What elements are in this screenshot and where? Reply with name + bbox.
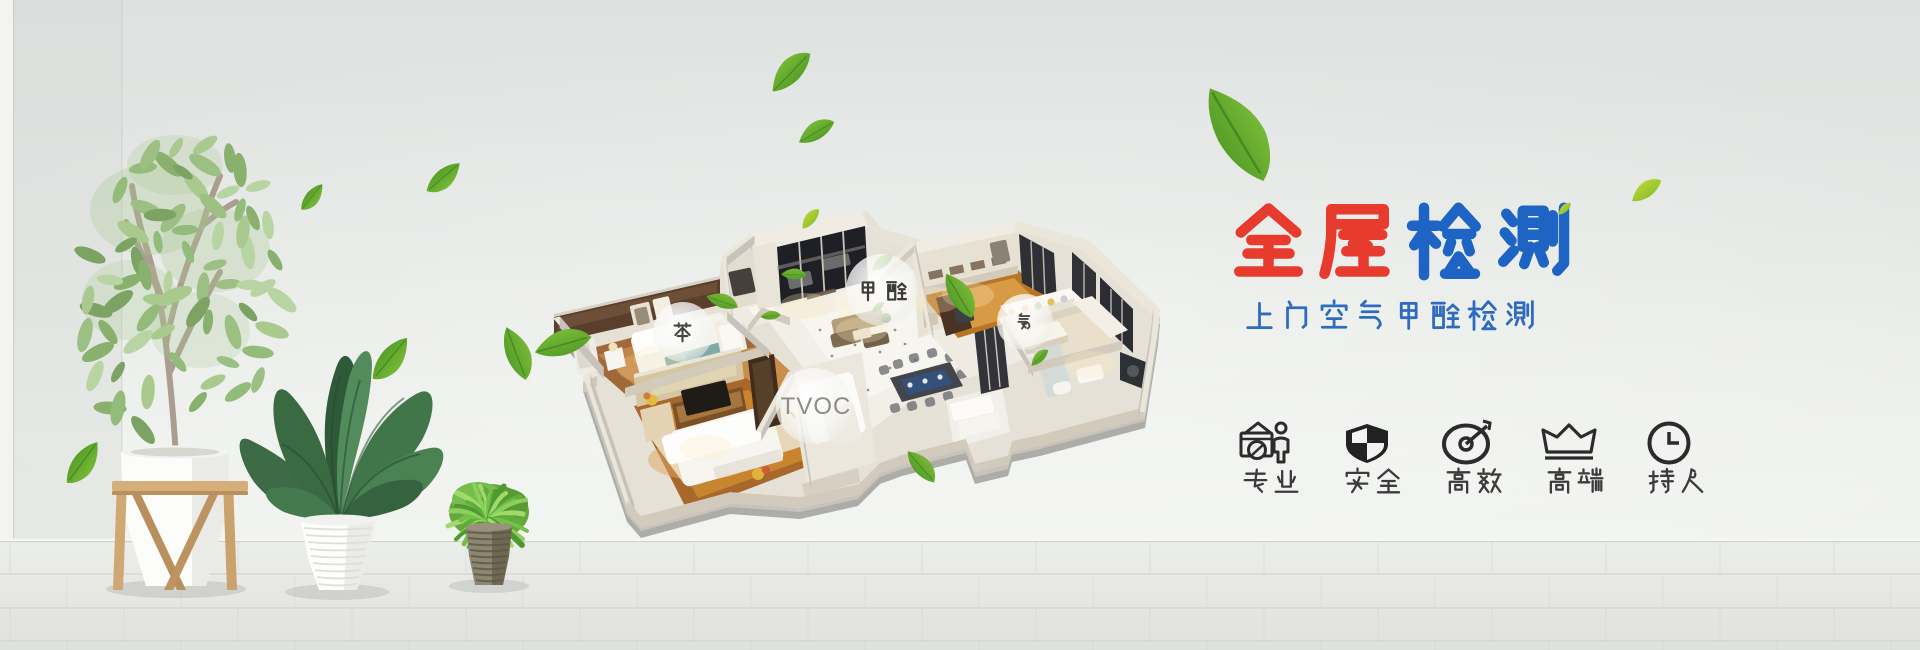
- svg-text:TVOC: TVOC: [781, 393, 852, 420]
